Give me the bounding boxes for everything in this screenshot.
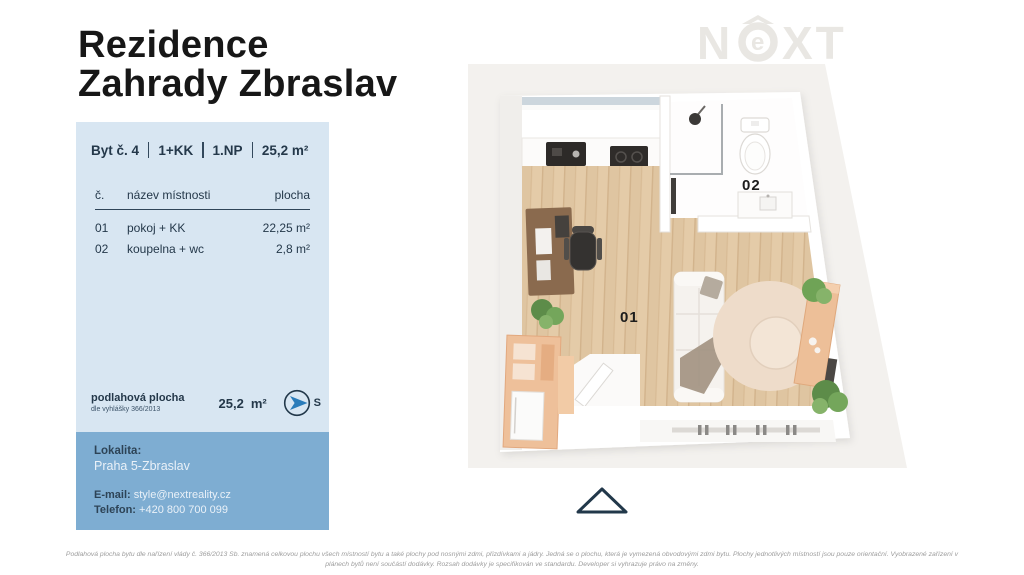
floor-plan: 01 02 — [458, 56, 923, 481]
toilet — [740, 118, 770, 174]
bathroom-left-wall — [660, 96, 670, 232]
col-name-header: název místnosti — [127, 188, 275, 202]
window — [522, 97, 660, 105]
room-number: 02 — [95, 242, 127, 256]
location-label: Lokalita: — [94, 445, 329, 457]
unit-number: Byt č. 4 — [91, 143, 139, 158]
separator — [202, 142, 203, 158]
wardrobe — [503, 335, 561, 449]
floor-area-value: 25,2 m² — [219, 396, 267, 411]
disclaimer: Podlahová plocha bytu dle nařízení vlády… — [37, 550, 987, 570]
room-area: 22,25 m² — [263, 221, 310, 235]
title-line-1: Rezidence — [78, 26, 398, 65]
page-title: Rezidence Zahrady Zbraslav — [78, 26, 398, 104]
spacer — [94, 473, 329, 486]
shelf — [558, 356, 574, 414]
email-row: E-mail: style@nextreality.cz — [94, 489, 329, 501]
room-table-header: č. název místnosti plocha — [95, 184, 310, 209]
table-row: 01 pokoj + KK 22,25 m² — [95, 218, 310, 239]
unit-floor: 1.NP — [213, 143, 243, 158]
window-sill — [522, 105, 660, 110]
phone-row: Telefon: +420 800 700 099 — [94, 504, 329, 516]
room-number: 01 — [95, 221, 127, 235]
email-value: style@nextreality.cz — [134, 489, 231, 501]
col-area-header: plocha — [275, 188, 310, 202]
entrance-marker-icon — [572, 484, 632, 518]
room-name: pokoj + KK — [127, 221, 263, 235]
unit-area: 25,2 m² — [262, 143, 309, 158]
separator — [148, 142, 149, 158]
col-number-header: č. — [95, 188, 127, 202]
compass: S — [282, 388, 321, 418]
location-value: Praha 5-Zbraslav — [94, 459, 329, 473]
disclaimer-line-1: Podlahová plocha bytu dle nařízení vlády… — [37, 550, 987, 560]
room-label-02: 02 — [742, 177, 761, 194]
table-divider — [95, 209, 310, 210]
phone-value: +420 800 700 099 — [139, 504, 228, 516]
floor-area-sublabel: dle vyhlášky 366/2013 — [91, 406, 185, 414]
logo-letter-e: e — [751, 29, 764, 56]
table-row: 02 koupelna + wc 2,8 m² — [95, 239, 310, 260]
bathroom-vanity — [738, 192, 792, 218]
phone-label: Telefon: — [94, 504, 136, 516]
compass-letter: S — [314, 397, 321, 409]
disclaimer-line-2: plánech bytů není součástí dodávky. Rozs… — [37, 560, 987, 570]
room-table: č. název místnosti plocha 01 pokoj + KK … — [95, 184, 310, 260]
contact-panel: Lokalita: Praha 5-Zbraslav E-mail: style… — [76, 432, 329, 530]
brochure-page: Rezidence Zahrady Zbraslav N e XT Byt č.… — [0, 0, 1024, 575]
compass-icon — [282, 388, 312, 418]
unit-summary: Byt č. 4 1+KK 1.NP 25,2 m² — [76, 122, 329, 158]
title-line-2: Zahrady Zbraslav — [78, 65, 398, 104]
unit-layout: 1+KK — [158, 143, 193, 158]
floor-area-label: podlahová plocha dle vyhlášky 366/2013 — [91, 392, 185, 414]
room-area: 2,8 m² — [276, 242, 310, 256]
apartment-info-panel: Byt č. 4 1+KK 1.NP 25,2 m² č. název míst… — [76, 122, 329, 432]
floor-area-footer: podlahová plocha dle vyhlášky 366/2013 2… — [91, 388, 321, 418]
room-label-01: 01 — [620, 309, 639, 326]
separator — [252, 142, 253, 158]
towel-rail — [671, 178, 676, 214]
round-table — [750, 317, 802, 369]
room-name: koupelna + wc — [127, 242, 276, 256]
email-label: E-mail: — [94, 489, 131, 501]
